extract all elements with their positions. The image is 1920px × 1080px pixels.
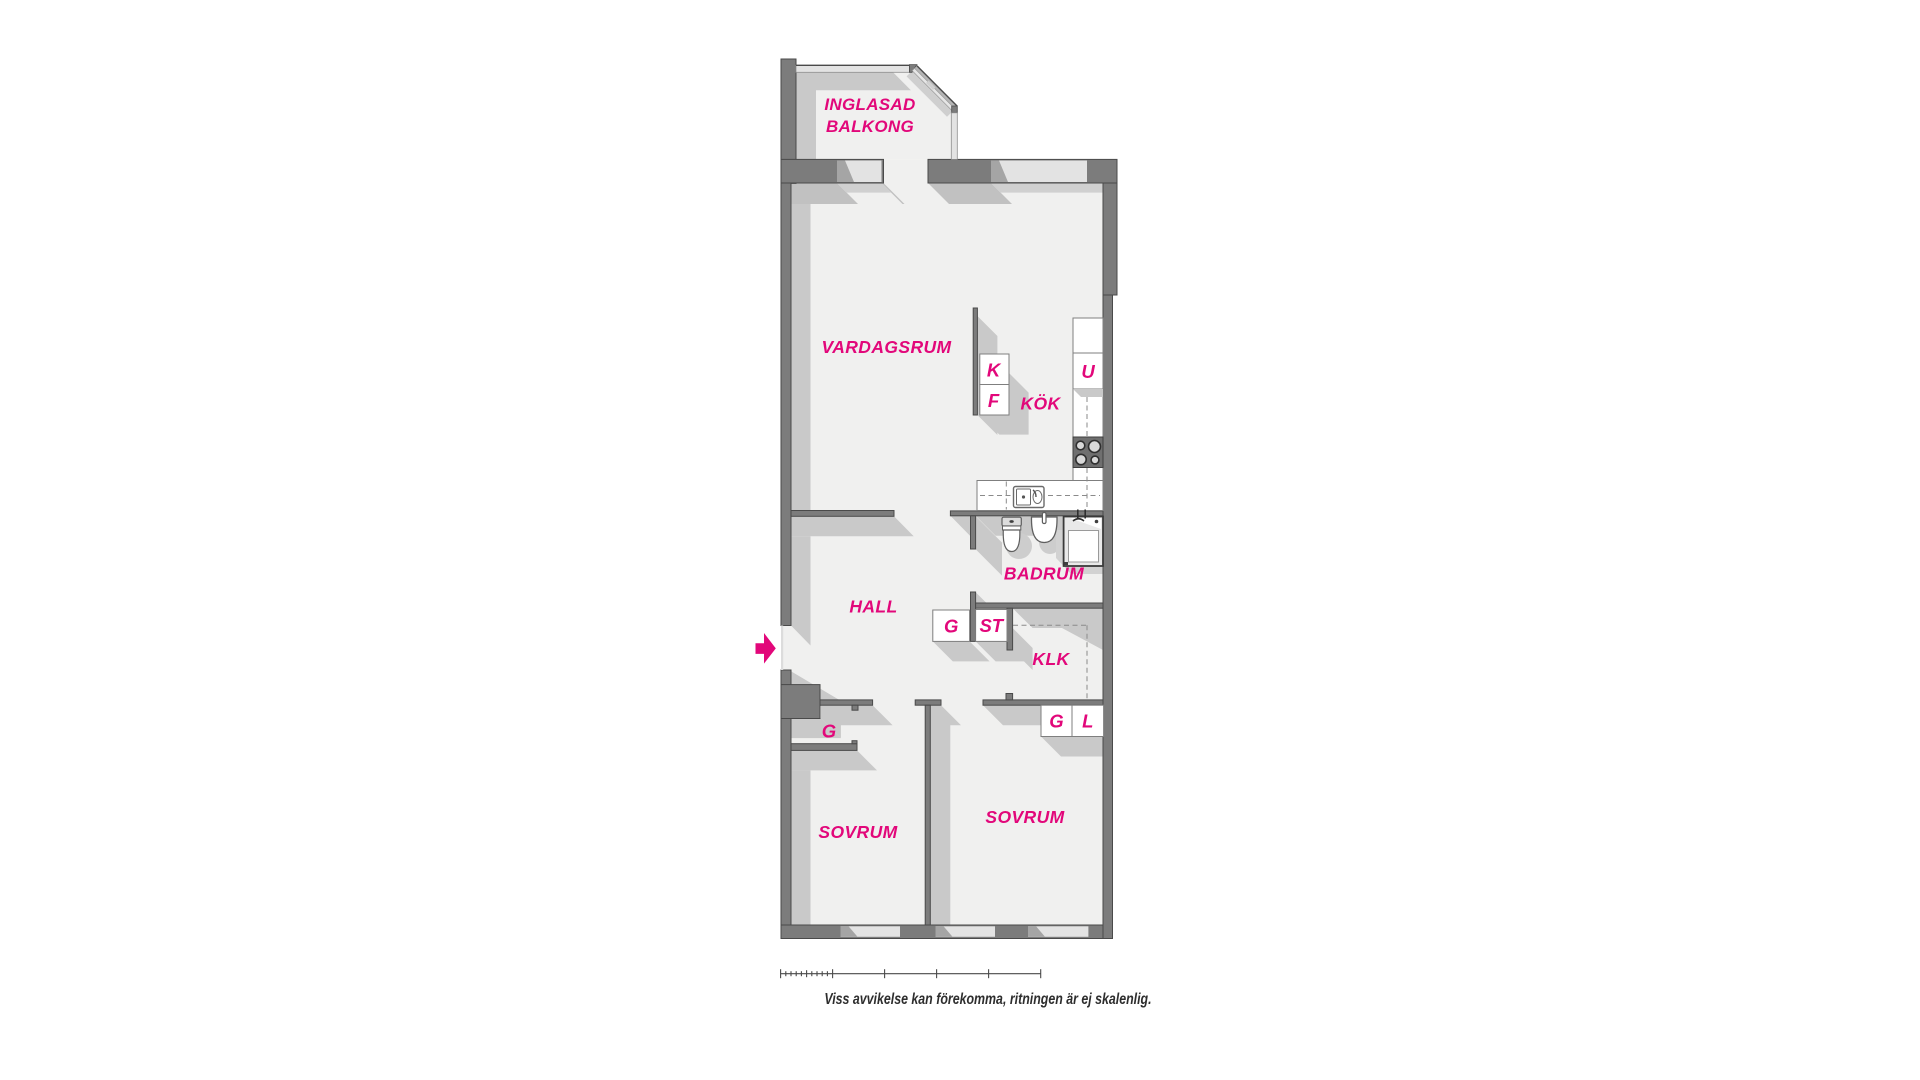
svg-text:SOVRUM: SOVRUM [985,807,1064,827]
svg-text:BALKONG: BALKONG [826,117,914,136]
svg-text:SOVRUM: SOVRUM [818,822,897,842]
svg-text:KLK: KLK [1032,649,1070,669]
svg-text:K: K [987,359,1002,380]
svg-text:VARDAGSRUM: VARDAGSRUM [821,337,951,357]
svg-text:ST: ST [979,615,1004,636]
svg-text:Viss avvikelse kan förekomma,: Viss avvikelse kan förekomma, ritningen … [824,990,1151,1008]
svg-text:BADRUM: BADRUM [1004,564,1084,584]
svg-text:KÖK: KÖK [1020,394,1061,414]
svg-text:F: F [988,390,1000,411]
svg-text:HALL: HALL [849,597,897,617]
svg-text:U: U [1081,361,1095,382]
svg-text:L: L [1082,711,1093,732]
svg-text:INGLASAD: INGLASAD [824,95,915,114]
svg-text:G: G [822,721,836,742]
svg-text:G: G [944,616,958,637]
svg-text:G: G [1049,711,1063,732]
